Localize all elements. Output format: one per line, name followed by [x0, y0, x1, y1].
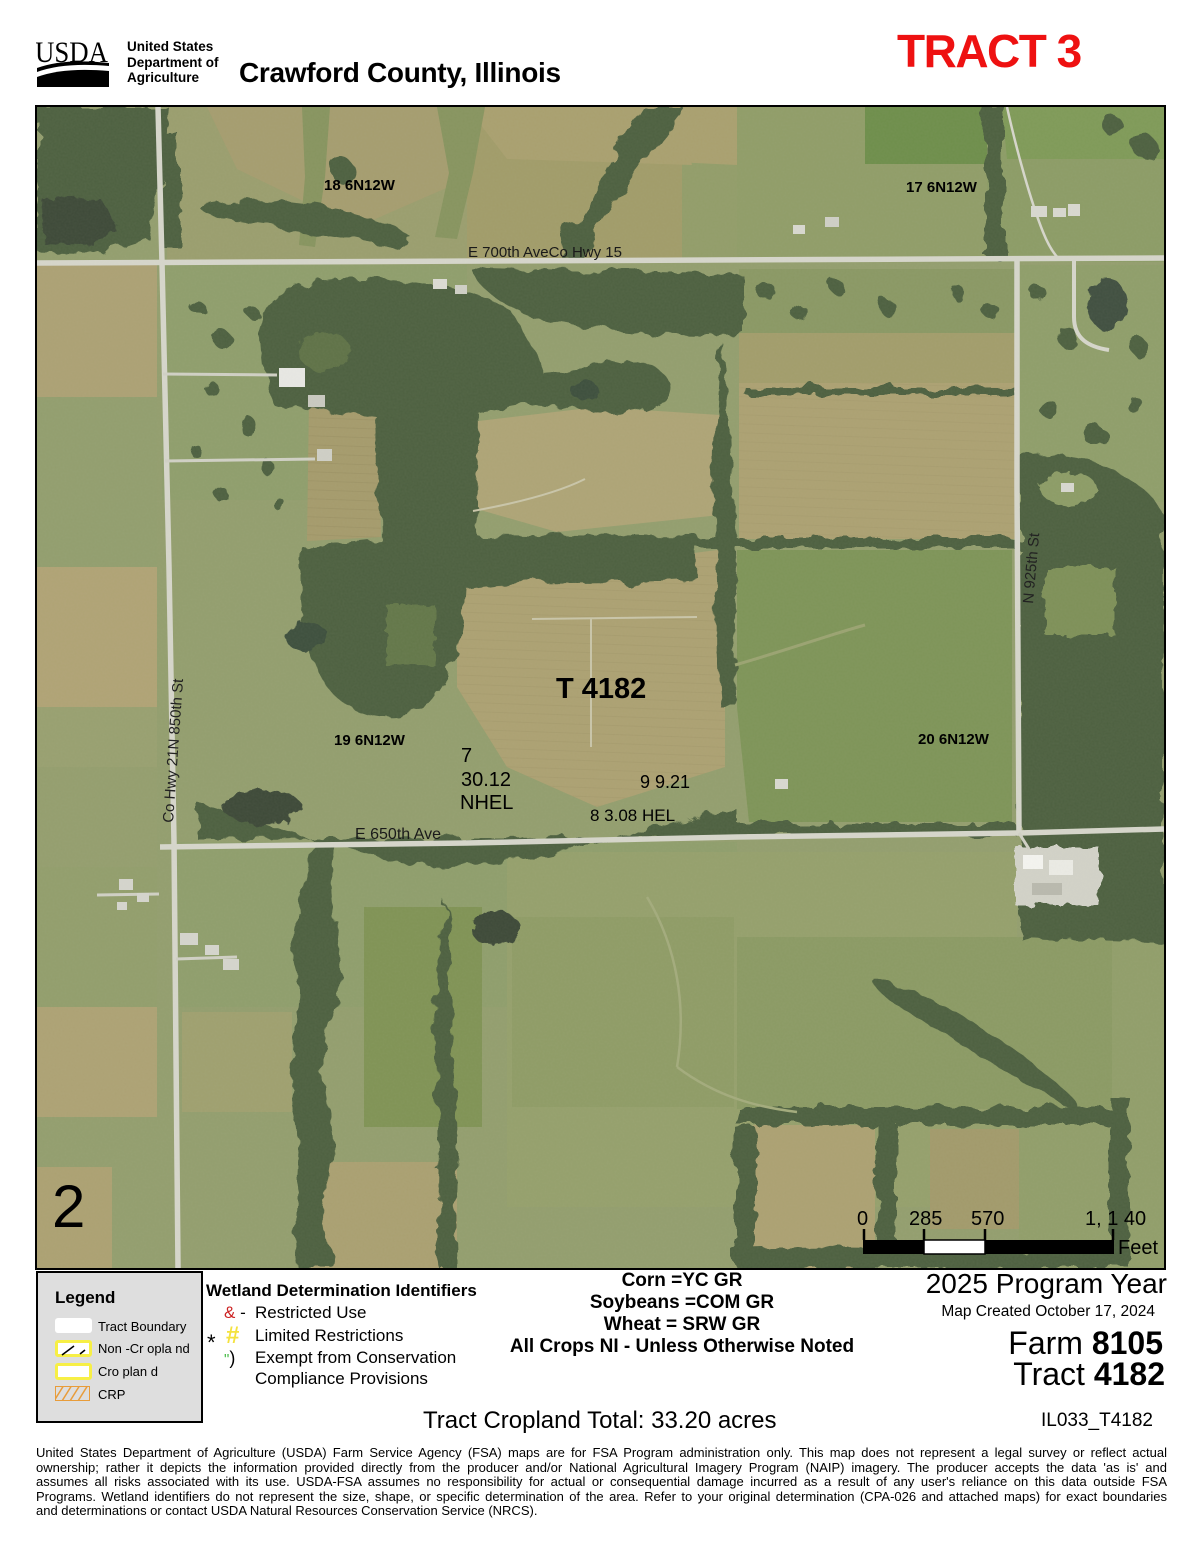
svg-text:NHEL: NHEL	[460, 792, 513, 814]
svg-text:30.12: 30.12	[461, 769, 511, 791]
svg-text:T 4182: T 4182	[556, 673, 646, 705]
svg-text:0: 0	[857, 1208, 868, 1230]
svg-text:19 6N12W: 19 6N12W	[334, 732, 406, 749]
svg-text:2: 2	[52, 1173, 85, 1240]
svg-text:1, 1 40: 1, 1 40	[1085, 1208, 1146, 1230]
svg-text:E 700th AveCo Hwy 15: E 700th AveCo Hwy 15	[468, 244, 622, 261]
svg-text:Feet: Feet	[1118, 1237, 1158, 1259]
svg-text:18 6N12W: 18 6N12W	[324, 177, 396, 194]
svg-text:E 650th Ave: E 650th Ave	[355, 826, 441, 843]
svg-text:8 3.08 HEL: 8 3.08 HEL	[590, 806, 675, 825]
svg-text:20 6N12W: 20 6N12W	[918, 731, 990, 748]
svg-text:9 9.21: 9 9.21	[640, 772, 690, 792]
svg-text:570: 570	[971, 1208, 1004, 1230]
svg-text:7: 7	[461, 745, 472, 767]
svg-text:285: 285	[909, 1208, 942, 1230]
svg-text:17 6N12W: 17 6N12W	[906, 179, 978, 196]
